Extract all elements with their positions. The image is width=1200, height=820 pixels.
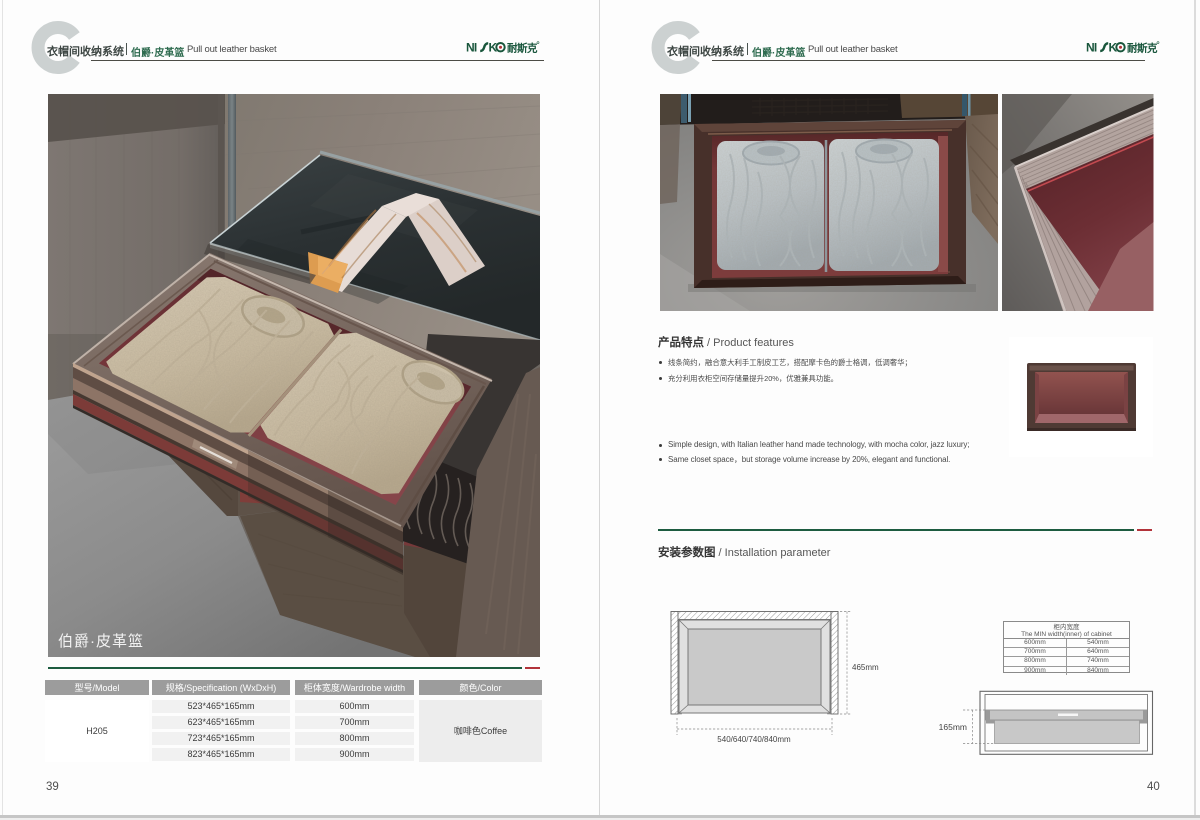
svg-text:NI: NI [1086,41,1097,55]
svg-text:465mm: 465mm [852,663,879,672]
svg-text:耐斯克: 耐斯克 [507,41,538,54]
svg-text:NI: NI [466,41,477,55]
svg-text:165mm: 165mm [939,722,967,732]
svg-text:耐斯克: 耐斯克 [1127,41,1158,54]
svg-text:540/640/740/840mm: 540/640/740/840mm [717,735,791,744]
